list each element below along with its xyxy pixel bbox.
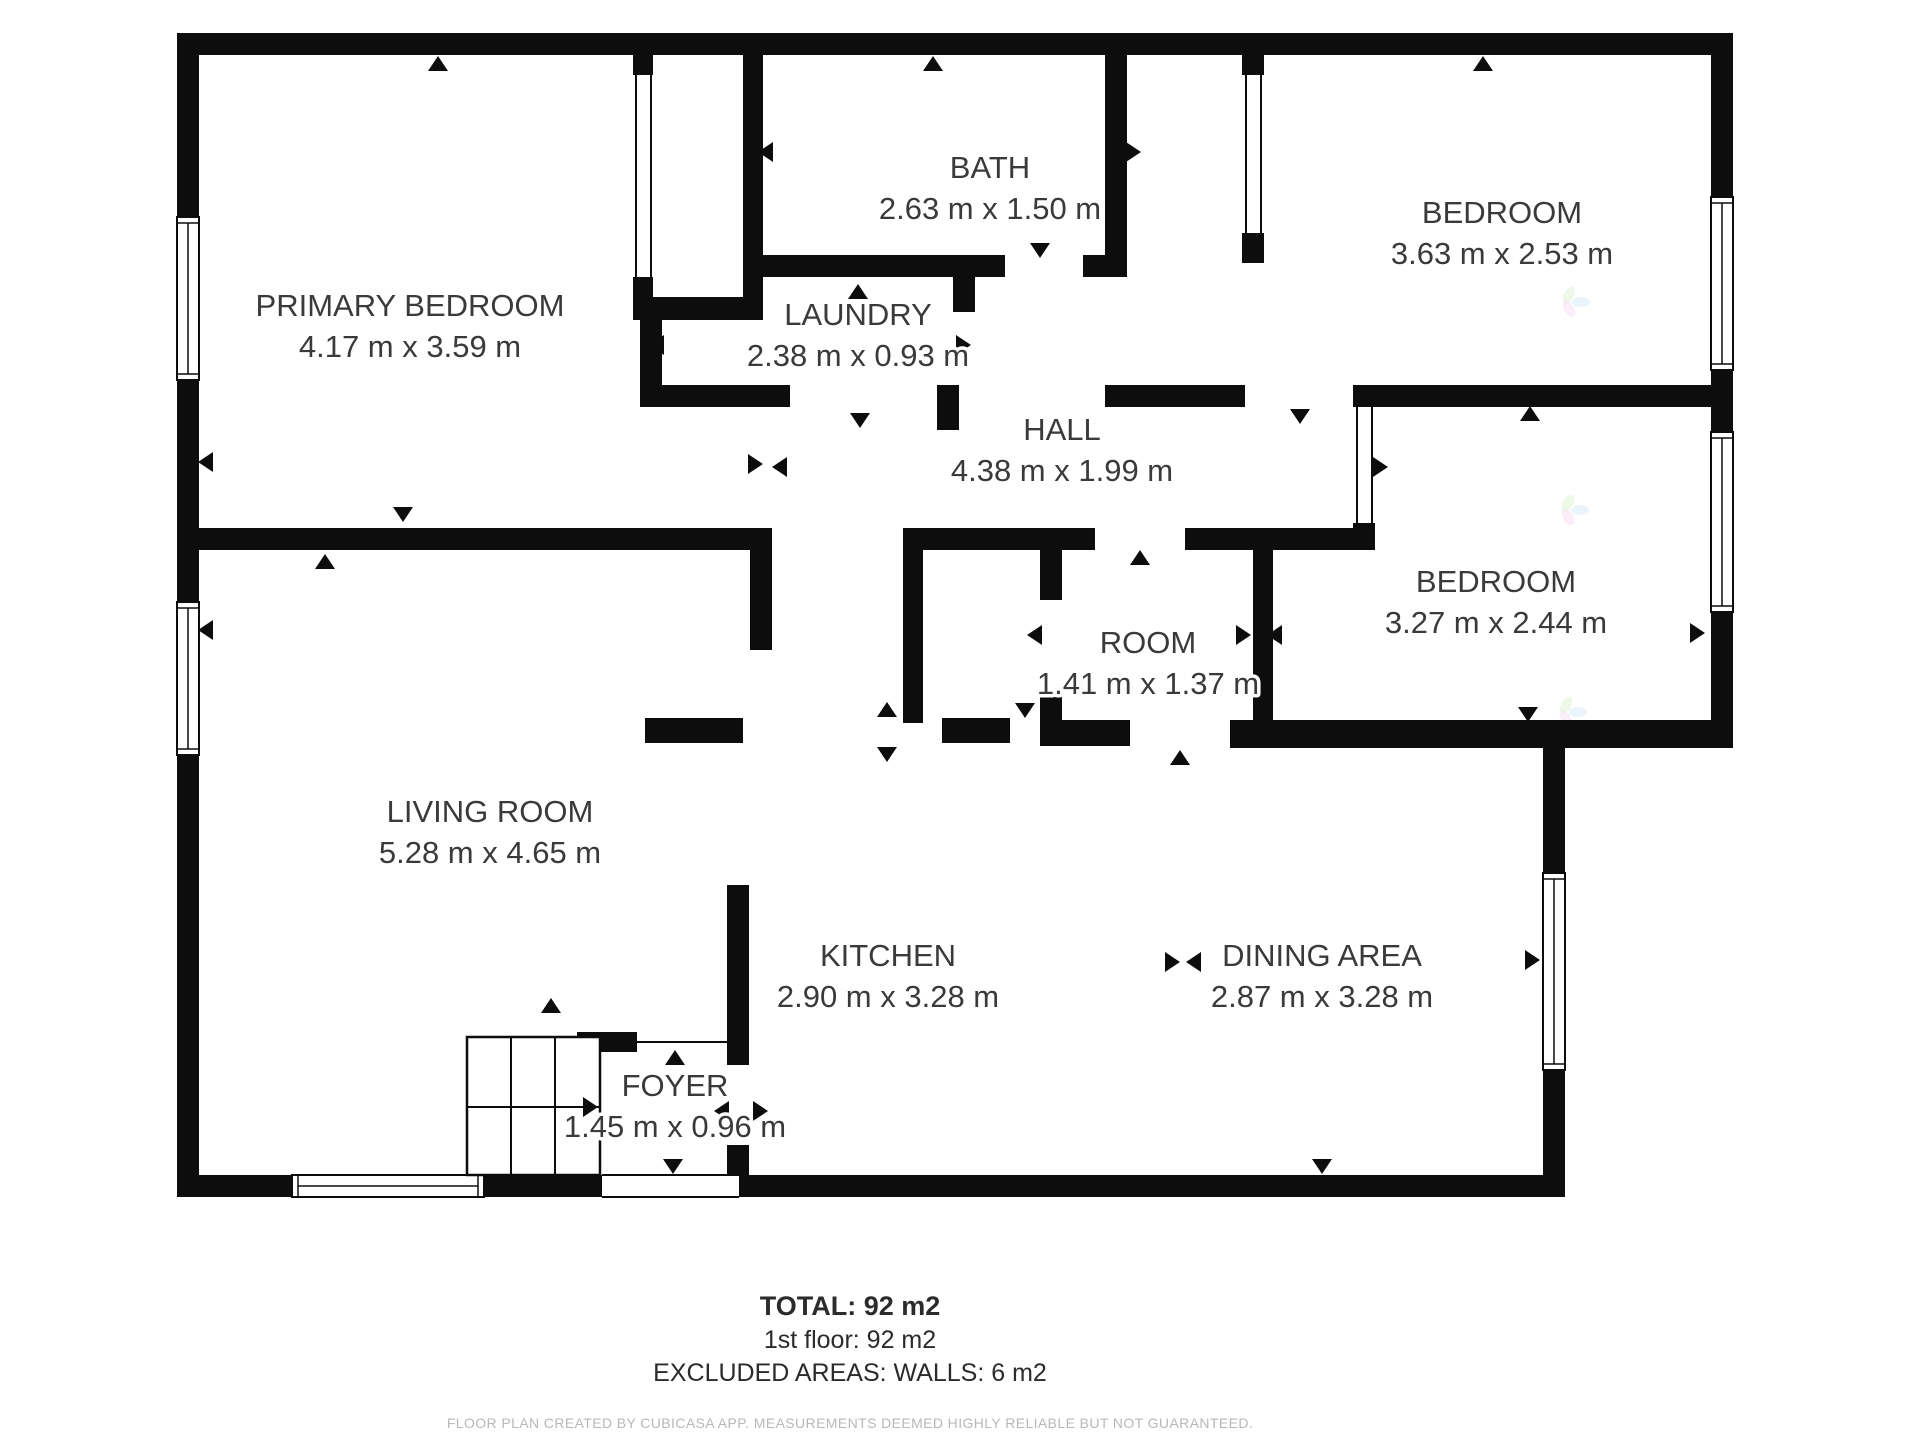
wall xyxy=(1083,255,1127,277)
room-dims-text: 2.63 m x 1.50 m xyxy=(879,191,1101,226)
door-arrow-icon xyxy=(877,702,897,717)
door-arrow-icon xyxy=(541,998,561,1013)
door-arrow-icon xyxy=(1290,409,1310,424)
room-name-text: BEDROOM xyxy=(1422,195,1582,230)
window-icon xyxy=(292,1175,484,1197)
wall xyxy=(750,528,772,650)
door-gaps-layer xyxy=(602,1175,739,1197)
room-label: BEDROOM3.63 m x 2.53 m xyxy=(1391,195,1613,271)
room-label: LIVING ROOM5.28 m x 4.65 m xyxy=(379,794,601,870)
room-name-text: BATH xyxy=(950,150,1030,185)
wall xyxy=(953,277,975,312)
door-arrow-icon xyxy=(663,1159,683,1174)
room-dims-text: 3.27 m x 2.44 m xyxy=(1385,605,1607,640)
door-arrow-icon xyxy=(1520,406,1540,421)
wall xyxy=(1242,55,1264,75)
window-icon xyxy=(177,217,199,380)
door-arrow-icon xyxy=(850,413,870,428)
floor-plan-summary: TOTAL: 92 m2 1st floor: 92 m2 EXCLUDED A… xyxy=(0,1288,1700,1431)
room-dims-text: 1.45 m x 0.96 m xyxy=(564,1109,786,1144)
door-arrow-icon xyxy=(772,457,787,477)
door-arrow-icon xyxy=(748,454,763,474)
room-name-text: PRIMARY BEDROOM xyxy=(256,288,565,323)
watermark-petal xyxy=(1569,707,1587,717)
room-label: DINING AREA2.87 m x 3.28 m xyxy=(1211,938,1433,1014)
wall xyxy=(903,528,1095,550)
wall xyxy=(633,55,653,75)
window-icon xyxy=(177,602,199,755)
watermark-petal xyxy=(1572,297,1590,307)
door-arrow-icon xyxy=(198,452,213,472)
door-arrow-icon xyxy=(1030,243,1050,258)
wall xyxy=(1353,523,1375,550)
wall xyxy=(1040,550,1062,600)
total-area-text: TOTAL: 92 m2 xyxy=(0,1288,1700,1324)
window-icon xyxy=(1543,873,1565,1070)
floor-plan: PRIMARY BEDROOM4.17 m x 3.59 mBATH2.63 m… xyxy=(0,0,1920,1440)
room-label: KITCHEN2.90 m x 3.28 m xyxy=(777,938,999,1014)
wall xyxy=(177,33,1733,55)
window-icon xyxy=(1711,432,1733,612)
wall xyxy=(633,277,653,299)
watermark-layer xyxy=(1557,285,1590,729)
room-dims-text: 4.17 m x 3.59 m xyxy=(299,329,521,364)
room-label: LAUNDRY2.38 m x 0.93 m xyxy=(747,297,969,373)
room-name-text: FOYER xyxy=(622,1068,729,1103)
door-arrow-icon xyxy=(1126,142,1141,162)
door-arrow-icon xyxy=(1130,550,1150,565)
window-icon xyxy=(1711,197,1733,370)
room-name-text: ROOM xyxy=(1100,625,1196,660)
wall xyxy=(1105,385,1245,407)
room-name-text: HALL xyxy=(1023,412,1101,447)
door-arrow-icon xyxy=(665,1050,685,1065)
room-label: BATH2.63 m x 1.50 m xyxy=(879,150,1101,226)
room-dims-text: 5.28 m x 4.65 m xyxy=(379,835,601,870)
door-arrow-icon xyxy=(1518,707,1538,722)
room-label: ROOM1.41 m x 1.37 m xyxy=(1037,625,1259,701)
room-name-text: LIVING ROOM xyxy=(387,794,594,829)
room-dims-text: 2.90 m x 3.28 m xyxy=(777,979,999,1014)
stairs-layer xyxy=(467,1037,600,1175)
wall xyxy=(743,55,763,297)
wall xyxy=(199,528,772,550)
wall xyxy=(1230,720,1733,748)
room-dims-text: 1.41 m x 1.37 m xyxy=(1037,666,1259,701)
door-arrow-icon xyxy=(1373,457,1388,477)
door-arrow-icon xyxy=(877,747,897,762)
door-arrow-icon xyxy=(1186,952,1201,972)
wall xyxy=(645,718,743,743)
room-label: BEDROOM3.27 m x 2.44 m xyxy=(1385,564,1607,640)
door-arrow-icon xyxy=(1690,623,1705,643)
door-arrow-icon xyxy=(1525,950,1540,970)
watermark-petal xyxy=(1571,505,1589,515)
wall xyxy=(640,385,790,407)
wall xyxy=(763,255,1005,277)
door-arrow-icon xyxy=(198,620,213,640)
door-arrow-icon xyxy=(428,56,448,71)
floor-area-text: 1st floor: 92 m2 xyxy=(0,1324,1700,1357)
door-arrow-icon xyxy=(1015,703,1035,718)
wall xyxy=(1105,55,1127,255)
wall xyxy=(942,718,1010,743)
wall xyxy=(727,885,749,1065)
wall xyxy=(1353,385,1733,407)
room-dims-text: 2.38 m x 0.93 m xyxy=(747,338,969,373)
door-opening xyxy=(602,1175,739,1197)
wall xyxy=(903,550,923,723)
room-dims-text: 2.87 m x 3.28 m xyxy=(1211,979,1433,1014)
wall xyxy=(1242,233,1264,263)
room-dims-text: 4.38 m x 1.99 m xyxy=(951,453,1173,488)
wall xyxy=(1040,720,1130,746)
wall xyxy=(727,1145,749,1175)
disclaimer-text: FLOOR PLAN CREATED BY CUBICASA APP. MEAS… xyxy=(0,1415,1700,1431)
room-dims-text: 3.63 m x 2.53 m xyxy=(1391,236,1613,271)
door-arrow-icon xyxy=(1312,1159,1332,1174)
excluded-areas-text: EXCLUDED AREAS: WALLS: 6 m2 xyxy=(0,1357,1700,1390)
door-arrow-icon xyxy=(1170,750,1190,765)
door-arrow-icon xyxy=(1165,952,1180,972)
door-arrow-icon xyxy=(315,554,335,569)
door-arrow-icon xyxy=(393,507,413,522)
room-label: PRIMARY BEDROOM4.17 m x 3.59 m xyxy=(256,288,565,364)
room-name-text: LAUNDRY xyxy=(784,297,932,332)
room-name-text: KITCHEN xyxy=(820,938,956,973)
door-arrow-icon xyxy=(1027,625,1042,645)
room-name-text: DINING AREA xyxy=(1222,938,1422,973)
door-arrow-icon xyxy=(923,56,943,71)
wall xyxy=(1185,528,1353,550)
door-arrow-icon xyxy=(1236,625,1251,645)
room-name-text: BEDROOM xyxy=(1416,564,1576,599)
room-label: HALL4.38 m x 1.99 m xyxy=(951,412,1173,488)
floor-plan-svg: PRIMARY BEDROOM4.17 m x 3.59 mBATH2.63 m… xyxy=(0,0,1920,1440)
wall xyxy=(633,297,763,320)
wall xyxy=(937,385,959,430)
room-labels-layer: PRIMARY BEDROOM4.17 m x 3.59 mBATH2.63 m… xyxy=(256,150,1614,1144)
door-arrow-icon xyxy=(1473,56,1493,71)
